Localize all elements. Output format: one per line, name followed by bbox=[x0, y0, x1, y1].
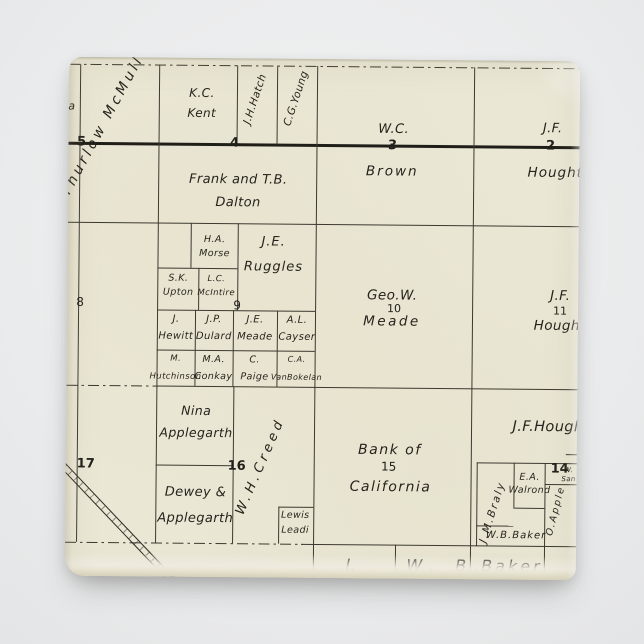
parcel-label-upton: S.K. Upton bbox=[163, 272, 194, 300]
parcel-label-strip-wb: W. B. bbox=[406, 554, 487, 579]
parcel-label-meade-small: J.E. Meade bbox=[237, 311, 273, 345]
section-line-h2 bbox=[156, 386, 577, 391]
plat-map: 5 4 3 2 8 9 10 11 17 16 15 14 a Thurlow … bbox=[65, 57, 581, 580]
parcel-label-houghton11-surname: Houghto bbox=[534, 316, 581, 337]
section-number-3: 3 bbox=[388, 138, 397, 153]
parcel-label-conkay: M.A. Conkay bbox=[195, 351, 233, 385]
parcel-label-nina-applegarth: Nina Applegarth bbox=[159, 400, 233, 445]
edge-tick bbox=[566, 454, 577, 455]
section-line-h3 bbox=[301, 544, 576, 547]
parcel-label-houghton14: J.F.Hough bbox=[512, 417, 580, 439]
parcel-label-dulard: J.P. Dulard bbox=[196, 311, 232, 345]
parcel-label-leadi: Lewis Leadi bbox=[281, 508, 310, 538]
section-number-2: 2 bbox=[546, 138, 555, 153]
parcel-label-young: C.G.Young bbox=[280, 69, 313, 128]
cluster-line-dulard-east bbox=[232, 310, 234, 386]
parcel-label-brown-surname: Brown bbox=[366, 161, 419, 182]
parcel-label-hatch: J.H.Hatch bbox=[240, 72, 271, 126]
parcel-label-vanbokelan: C.A. VanBokelan bbox=[271, 351, 322, 387]
parcel-label-meade-surname: Meade bbox=[363, 311, 421, 332]
section-number-4: 4 bbox=[230, 136, 239, 151]
parcel-label-meade-initials: Geo.W. bbox=[367, 285, 417, 306]
parcel-label-dalton: Frank and T.B. Dalton bbox=[189, 168, 288, 215]
parcel-label-cayser: A.L. Cayser bbox=[278, 312, 315, 346]
parcel-line-leadi-west bbox=[278, 507, 279, 544]
parcel-label-strip-j: J. bbox=[345, 553, 356, 577]
parcel-label-bank-line2: California bbox=[350, 477, 432, 499]
parcel-label-walrond: E.A. Walrond bbox=[508, 471, 550, 497]
section-line-h3-dashed bbox=[65, 542, 303, 546]
parcel-label-bank-line1: Bank of bbox=[358, 440, 422, 462]
parcel-label-brown-initials: W.C. bbox=[378, 120, 409, 140]
parcel-label-kent: K.C. Kent bbox=[187, 83, 216, 123]
cluster-line-morse-west bbox=[190, 223, 191, 268]
map-magnet: 5 4 3 2 8 9 10 11 17 16 15 14 a Thurlow … bbox=[65, 57, 581, 580]
photo-background: 5 4 3 2 8 9 10 11 17 16 15 14 a Thurlow … bbox=[0, 0, 644, 644]
section-line-h2-dashed bbox=[66, 385, 158, 388]
section-line-h1 bbox=[68, 222, 579, 227]
parcel-label-wb-baker: W.B.Baker bbox=[486, 528, 546, 544]
parcel-label-strip-baker: Baker bbox=[481, 554, 543, 579]
main-road-line bbox=[69, 142, 580, 149]
parcel-label-morse: H.A. Morse bbox=[199, 233, 230, 261]
section-line-v-mcmullen bbox=[155, 65, 160, 543]
parcel-line-nina-south bbox=[156, 465, 234, 467]
parcel-label-hewitt: J. Hewitt bbox=[158, 311, 193, 345]
section-line-v-east bbox=[470, 67, 475, 579]
parcel-label-mcintire: L.C. McIntire bbox=[197, 272, 235, 300]
parcel-line-hatch-east bbox=[277, 66, 279, 145]
section-number-16: 16 bbox=[228, 459, 246, 474]
section-number-15: 15 bbox=[381, 460, 396, 474]
parcel-label-paige: C. Paige bbox=[240, 351, 268, 385]
section-number-9: 9 bbox=[233, 298, 241, 312]
parcel-label-san: W. San bbox=[561, 466, 576, 484]
section-number-8: 8 bbox=[76, 295, 84, 309]
parcel-line-kent-east bbox=[237, 65, 239, 144]
strip-line-1 bbox=[395, 545, 396, 579]
parcel-label-houghton2-initials: J.F. bbox=[543, 119, 563, 139]
cluster-line-ruggles-west bbox=[237, 223, 239, 310]
parcel-label-houghton2-surname: Hought bbox=[527, 163, 580, 184]
parcel-label-houghton11-initials: J.F. bbox=[550, 286, 570, 306]
section-number-17: 17 bbox=[77, 456, 95, 471]
parcel-label-edge-letter: a bbox=[68, 99, 75, 116]
cluster-line-walrond-south bbox=[513, 508, 544, 509]
parcel-label-ruggles: J.E. Ruggles bbox=[244, 229, 304, 280]
parcel-label-dewey-applegarth: Dewey & Applegarth bbox=[157, 480, 233, 533]
